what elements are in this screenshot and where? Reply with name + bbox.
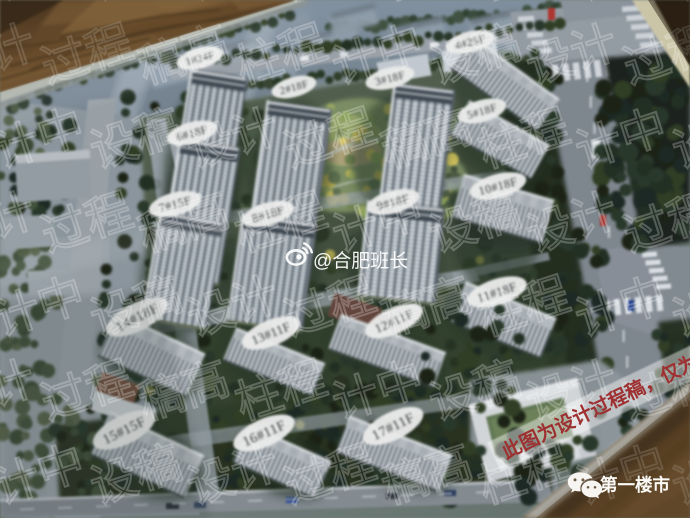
svg-text:第一楼市: 第一楼市	[600, 475, 670, 495]
svg-text:@合肥班长: @合肥班长	[313, 250, 408, 272]
